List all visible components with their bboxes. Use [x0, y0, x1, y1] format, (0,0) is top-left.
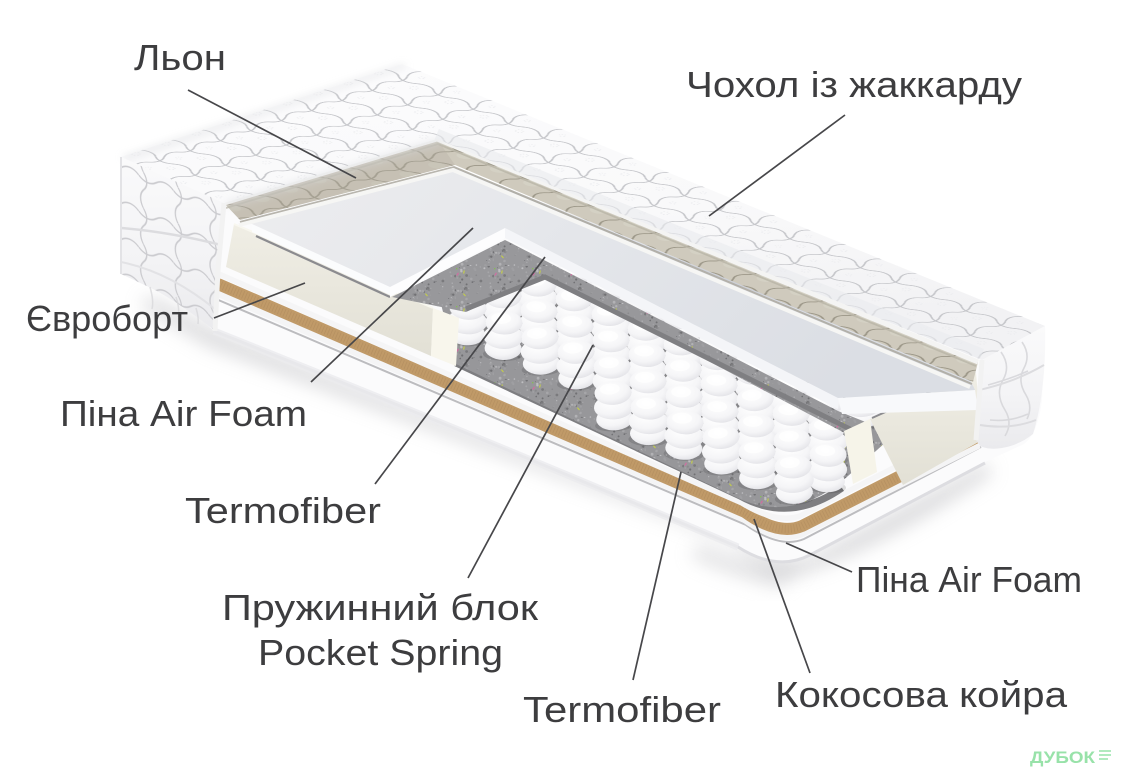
- svg-text:Піна Air Foam: Піна Air Foam: [60, 393, 307, 434]
- svg-text:Pocket Spring: Pocket Spring: [258, 632, 503, 673]
- svg-text:Termofiber: Termofiber: [185, 490, 381, 531]
- svg-text:Кокосова койра: Кокосова койра: [775, 674, 1068, 715]
- svg-text:Чохол із жаккарду: Чохол із жаккарду: [686, 64, 1022, 105]
- svg-text:Пружинний блок: Пружинний блок: [222, 587, 538, 628]
- svg-text:ДУБОК: ДУБОК: [1030, 748, 1096, 767]
- svg-text:Євроборт: Євроборт: [26, 298, 188, 339]
- svg-text:Termofiber: Termofiber: [523, 689, 721, 730]
- svg-text:Піна Air Foam: Піна Air Foam: [856, 559, 1082, 600]
- svg-text:Льон: Льон: [134, 37, 226, 78]
